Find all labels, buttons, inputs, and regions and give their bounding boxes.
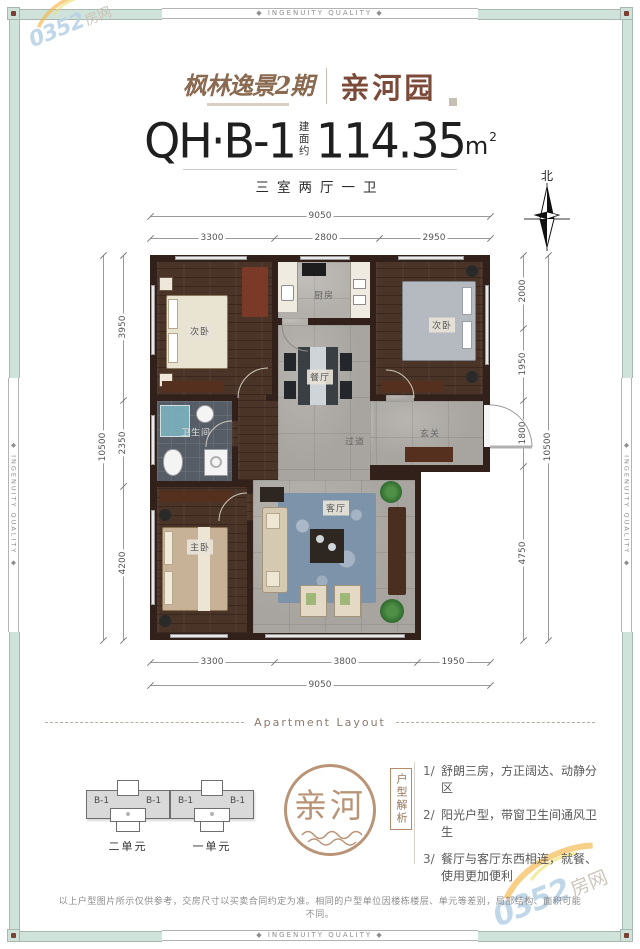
stamp-waves-icon: [298, 829, 362, 847]
dim-left-seg: 2350: [118, 430, 128, 457]
dim-right-seg: 1950: [518, 351, 528, 378]
unit-stairwell: [117, 780, 139, 796]
window: [170, 634, 228, 638]
unit-diagram-1: B-1 B-1 一单元: [170, 778, 254, 834]
frame-bar: [9, 632, 20, 929]
toilet: [163, 449, 183, 476]
area-label: 建面约: [299, 121, 312, 157]
frame-corner-tr: [620, 7, 633, 20]
analysis-divider: [414, 762, 415, 864]
room-label-dining: 餐厅: [307, 370, 333, 385]
unit-name: 二单元: [86, 838, 170, 854]
point-number: 3/: [423, 851, 441, 886]
opening-corridor: [370, 401, 376, 465]
brand-logo-primary: 枫林逸景2期: [183, 66, 314, 106]
pillow: [164, 571, 173, 605]
lamp: [466, 371, 478, 383]
room-label-corridor: 过道: [345, 435, 365, 448]
unit-dot: [126, 812, 130, 816]
brand-primary-tagline: [207, 103, 289, 106]
dim-bottom-seg: 1950: [440, 657, 467, 667]
brand-logo-secondary: 亲河园: [340, 65, 436, 107]
room-label-bedroom-left: 次卧: [187, 324, 213, 339]
brand-separator: [326, 68, 327, 104]
lamp: [466, 265, 478, 277]
window: [300, 256, 350, 260]
kitchen-hob: [353, 279, 366, 289]
frame-banner-text: ◆ INGENUITY QUALITY ◆: [623, 435, 631, 574]
opening-bathroom: [232, 421, 238, 447]
unit-code: QH·B-1: [144, 115, 295, 167]
sink: [196, 405, 214, 423]
chair-pillow: [340, 593, 350, 605]
plan-notch: [421, 472, 490, 640]
corner-dot: [11, 11, 16, 16]
unit-stairwell: [116, 821, 140, 832]
frame-bar: [478, 931, 620, 942]
brand-registered-mark: [449, 98, 457, 106]
site-watermark: 0352房网: [20, 0, 115, 53]
brand-primary-text: 枫林逸景2期: [183, 71, 314, 100]
area-value: 114.35: [316, 115, 465, 167]
sofa-cushion: [266, 571, 280, 587]
dim-left-seg: 4200: [118, 550, 128, 577]
kitchen-hob: [353, 295, 366, 305]
unit-title: QH·B-1 建面约 114.35 m 2: [0, 116, 640, 166]
dim-bottom-seg: 3300: [199, 657, 226, 667]
compass-icon: [522, 181, 572, 253]
corner-dot: [624, 933, 629, 938]
unit-stairwell: [200, 821, 224, 832]
unit-diagram-2: B-1 B-1 二单元: [86, 778, 170, 834]
frame-corner-tl: [7, 7, 20, 20]
window: [485, 285, 489, 365]
point-number: 1/: [423, 763, 441, 798]
pillow: [462, 287, 472, 315]
divider-dash: [396, 722, 595, 723]
section-divider: Apartment Layout: [45, 716, 595, 729]
table-plate: [316, 535, 324, 543]
floor-plan: 次卧 厨房 次卧 餐厅 卫生间 过道 玄关 主卧 客厅: [150, 255, 490, 640]
unit-name: 一单元: [170, 838, 254, 854]
chair: [340, 353, 352, 371]
room-label-foyer: 玄关: [420, 427, 440, 440]
analysis-point: 1/ 舒朗三房，方正阔达、动静分区: [423, 763, 605, 798]
dim-top-total: 9050: [307, 211, 334, 221]
dim-bottom-total: 9050: [307, 680, 334, 690]
disclaimer-text: 以上户型图片所示仅供参考，交房尺寸以买卖合同约定为准。相同的户型单位因楼栋楼层、…: [55, 894, 585, 920]
kitchen-counter: [350, 262, 370, 318]
pillow: [462, 321, 472, 349]
kitchen-stove: [302, 263, 326, 276]
divider-dash: [45, 722, 244, 723]
plant: [380, 599, 404, 623]
unit-stairwell: [201, 780, 223, 796]
unit-flat-label: B-1: [146, 796, 161, 806]
dim-left-total: 10500: [98, 431, 108, 464]
nightstand: [159, 277, 173, 291]
opening-entry: [484, 405, 490, 447]
point-text: 阳光户型，带窗卫生间通风卫生: [441, 807, 605, 842]
corner-dot: [11, 933, 16, 938]
frame-banner-text: ◆ INGENUITY QUALITY ◆: [10, 435, 18, 574]
chair: [340, 381, 352, 399]
side-table: [260, 487, 284, 502]
point-number: 2/: [423, 807, 441, 842]
room-label-bedroom-right: 次卧: [429, 318, 455, 333]
room-hall-wood: [238, 401, 278, 480]
window: [151, 510, 155, 605]
area-unit-sup: 2: [489, 130, 497, 144]
window: [265, 634, 405, 638]
table-plate: [328, 543, 336, 551]
dim-right-seg: 2000: [518, 278, 528, 305]
dim-right-seg: 4750: [518, 540, 528, 567]
foyer-bench: [405, 447, 453, 462]
frame-banner-bottom: ◆ INGENUITY QUALITY ◆: [162, 930, 478, 941]
unit-dot: [210, 812, 214, 816]
area-unit: m: [465, 132, 488, 160]
frame-banner-right: ◆ INGENUITY QUALITY ◆: [621, 378, 632, 632]
frame-banner-left: ◆ INGENUITY QUALITY ◆: [8, 378, 19, 632]
plant: [380, 481, 402, 503]
dim-top-seg: 2950: [421, 233, 448, 243]
brand-stamp: 亲河: [284, 764, 376, 856]
window: [175, 256, 247, 260]
window: [151, 415, 155, 465]
coffee-table: [310, 529, 344, 563]
window: [398, 256, 464, 260]
bench-red: [242, 267, 268, 317]
dim-left-seg: 3950: [118, 314, 128, 341]
washer-door: [210, 456, 222, 468]
frame-banner-top: ◆ INGENUITY QUALITY ◆: [162, 8, 478, 19]
analysis-points: 1/ 舒朗三房，方正阔达、动静分区 2/ 阳光户型，带窗卫生间通风卫生 3/ 餐…: [423, 763, 605, 894]
opening-kitchen: [282, 318, 308, 325]
lamp: [159, 509, 171, 521]
kitchen-sink: [281, 285, 294, 301]
dim-top-seg: 3300: [199, 233, 226, 243]
unit-flat-label: B-1: [230, 796, 245, 806]
pillow: [164, 531, 173, 565]
analysis-label: 户型解析: [390, 768, 412, 830]
chair: [284, 353, 296, 371]
analysis-point: 2/ 阳光户型，带窗卫生间通风卫生: [423, 807, 605, 842]
room-label-kitchen: 厨房: [314, 289, 334, 302]
point-text: 餐厅与客厅东西相连，就餐、使用更加便利: [441, 851, 605, 886]
dim-right-seg: 1800: [518, 420, 528, 447]
frame-bar: [622, 632, 633, 929]
room-label-bathroom: 卫生间: [181, 426, 211, 439]
analysis-point: 3/ 餐厅与客厅东西相连，就餐、使用更加便利: [423, 851, 605, 886]
brand-header: 枫林逸景2期 亲河园: [0, 60, 640, 112]
frame-corner-br: [620, 929, 633, 942]
corner-dot: [624, 11, 629, 16]
frame-banner-text: ◆ INGENUITY QUALITY ◆: [250, 931, 390, 940]
opening-master: [247, 493, 253, 521]
opening-bedroom-right: [386, 395, 414, 401]
unit-flat-label: B-1: [178, 796, 193, 806]
sofa-cushion: [266, 513, 280, 529]
wardrobe: [160, 491, 232, 502]
stamp-text: 亲河: [287, 779, 373, 827]
chair: [284, 381, 296, 399]
watermark-cn: 房网: [81, 1, 114, 29]
lamp: [159, 615, 171, 627]
frame-corner-bl: [7, 929, 20, 942]
chair-pillow: [306, 593, 316, 605]
point-text: 舒朗三房，方正阔达、动静分区: [441, 763, 605, 798]
tv-cabinet: [388, 507, 406, 595]
dim-right-total: 10500: [543, 431, 553, 464]
room-label-living: 客厅: [323, 501, 349, 516]
frame-bar: [20, 931, 162, 942]
dim-bottom-seg: 3800: [332, 657, 359, 667]
opening-bedroom-left: [238, 395, 266, 401]
wardrobe: [162, 381, 224, 392]
section-title: Apartment Layout: [254, 716, 386, 729]
window: [151, 285, 155, 355]
frame-bar: [478, 9, 620, 20]
unit-flat-label: B-1: [94, 796, 109, 806]
pillow: [168, 299, 178, 329]
poster-page: ◆ INGENUITY QUALITY ◆ ◆ INGENUITY QUALIT…: [0, 0, 640, 949]
room-label-master: 主卧: [187, 540, 213, 555]
pillow: [168, 333, 178, 363]
title-underline: [183, 169, 457, 170]
bench-red: [382, 381, 444, 392]
dim-top-seg: 2800: [313, 233, 340, 243]
frame-banner-text: ◆ INGENUITY QUALITY ◆: [250, 9, 390, 18]
